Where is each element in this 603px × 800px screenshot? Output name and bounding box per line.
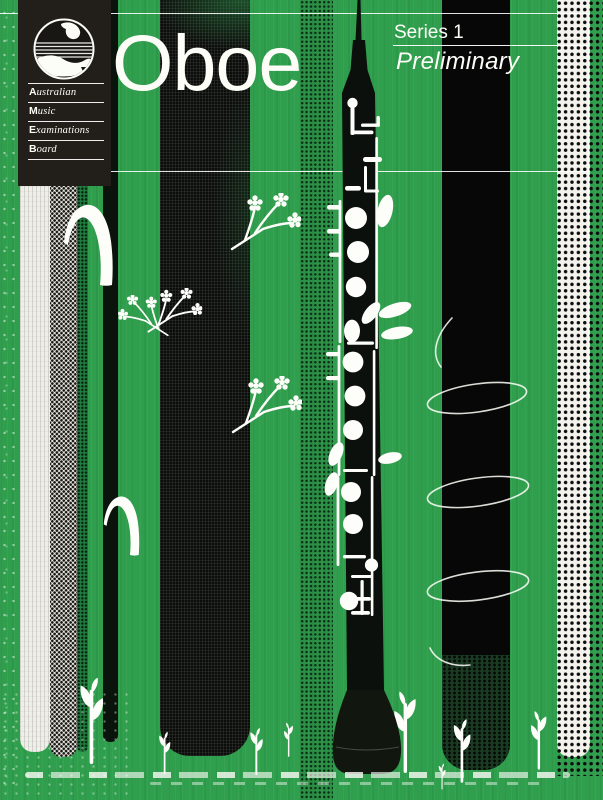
- book-cover: Australian Music Examinations Board Oboe…: [0, 0, 603, 800]
- org-initial: M: [29, 105, 38, 117]
- series-underline: [393, 45, 588, 46]
- org-initial: B: [29, 143, 37, 155]
- org-rest: xaminations: [36, 125, 90, 136]
- dotted-green-stripe: [300, 0, 333, 800]
- black-coil-column: [442, 0, 510, 770]
- org-name-line: Board: [28, 140, 104, 160]
- woven-black-column: [160, 0, 250, 756]
- right-halftone-dots: [556, 0, 603, 776]
- right-hairline: [588, 13, 589, 505]
- org-rest: ustralian: [37, 87, 77, 98]
- page-title: Oboe: [112, 23, 301, 102]
- org-rest: oard: [37, 144, 57, 155]
- series-label: Series 1: [394, 23, 464, 44]
- middle-hairline: [110, 171, 588, 172]
- ameb-logo-panel: Australian Music Examinations Board: [18, 0, 111, 186]
- org-name-line: Examinations: [28, 121, 104, 140]
- org-initial: E: [29, 124, 36, 136]
- org-name-line: Australian: [28, 83, 104, 102]
- ameb-crest-logo: [31, 16, 97, 82]
- org-rest: usic: [38, 106, 56, 117]
- org-name-block: Australian Music Examinations Board: [28, 83, 104, 160]
- distressed-streak-thin: [150, 782, 540, 785]
- grade-label: Preliminary: [396, 49, 519, 75]
- org-initial: A: [29, 86, 37, 98]
- bottom-left-speckle: [0, 690, 130, 800]
- left-edge-speckle: [0, 6, 15, 794]
- org-name-line: Music: [28, 102, 104, 121]
